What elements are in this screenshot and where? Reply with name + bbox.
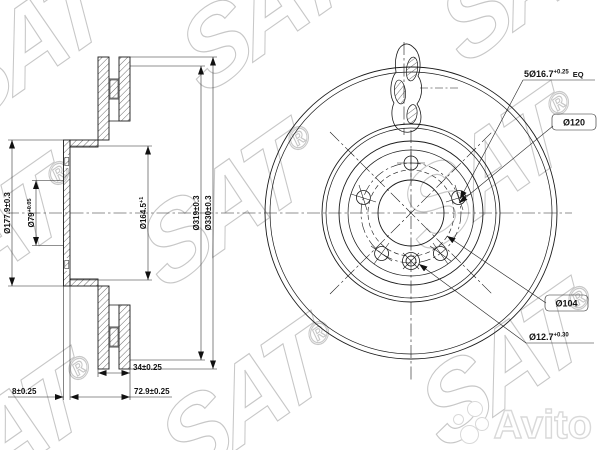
drawing-page: SAT® SAT® SAT® SAT® SAT® SAT® SAT® SAT® … bbox=[0, 0, 600, 450]
label-aux-circle: Ø104 bbox=[555, 299, 577, 309]
dim-chamfer-od: Ø319±0.3 bbox=[192, 195, 201, 231]
avito-label: Avito bbox=[493, 406, 592, 444]
dim-disc-thickness: 34±0.25 bbox=[133, 363, 162, 372]
front-view bbox=[265, 42, 557, 382]
dim-overall-height: 72.9±0.25 bbox=[134, 387, 170, 396]
section-dimensions bbox=[8, 57, 217, 400]
local-section bbox=[391, 42, 458, 135]
label-bolt-circle: Ø120 bbox=[563, 118, 585, 128]
avito-watermark: Avito bbox=[453, 400, 592, 444]
dim-flange-thickness: 8±0.25 bbox=[12, 387, 37, 396]
brake-disc-drawing: Ø177.9±0.3 Ø79+0.05 Ø164.5+1 Ø319±0.3 Ø3… bbox=[0, 0, 600, 450]
dim-bore: Ø79+0.05 bbox=[27, 198, 36, 227]
dim-outer-od: Ø330±0.3 bbox=[204, 195, 213, 231]
dim-hat-id: Ø164.5+1 bbox=[139, 197, 148, 230]
label-bolt-holes: 5Ø16.7+0.25EQ bbox=[524, 69, 584, 79]
dim-flange-od: Ø177.9±0.3 bbox=[3, 192, 12, 234]
avito-logo-icon bbox=[453, 400, 489, 444]
label-pin-hole: Ø12.7+0.30 bbox=[529, 332, 569, 342]
